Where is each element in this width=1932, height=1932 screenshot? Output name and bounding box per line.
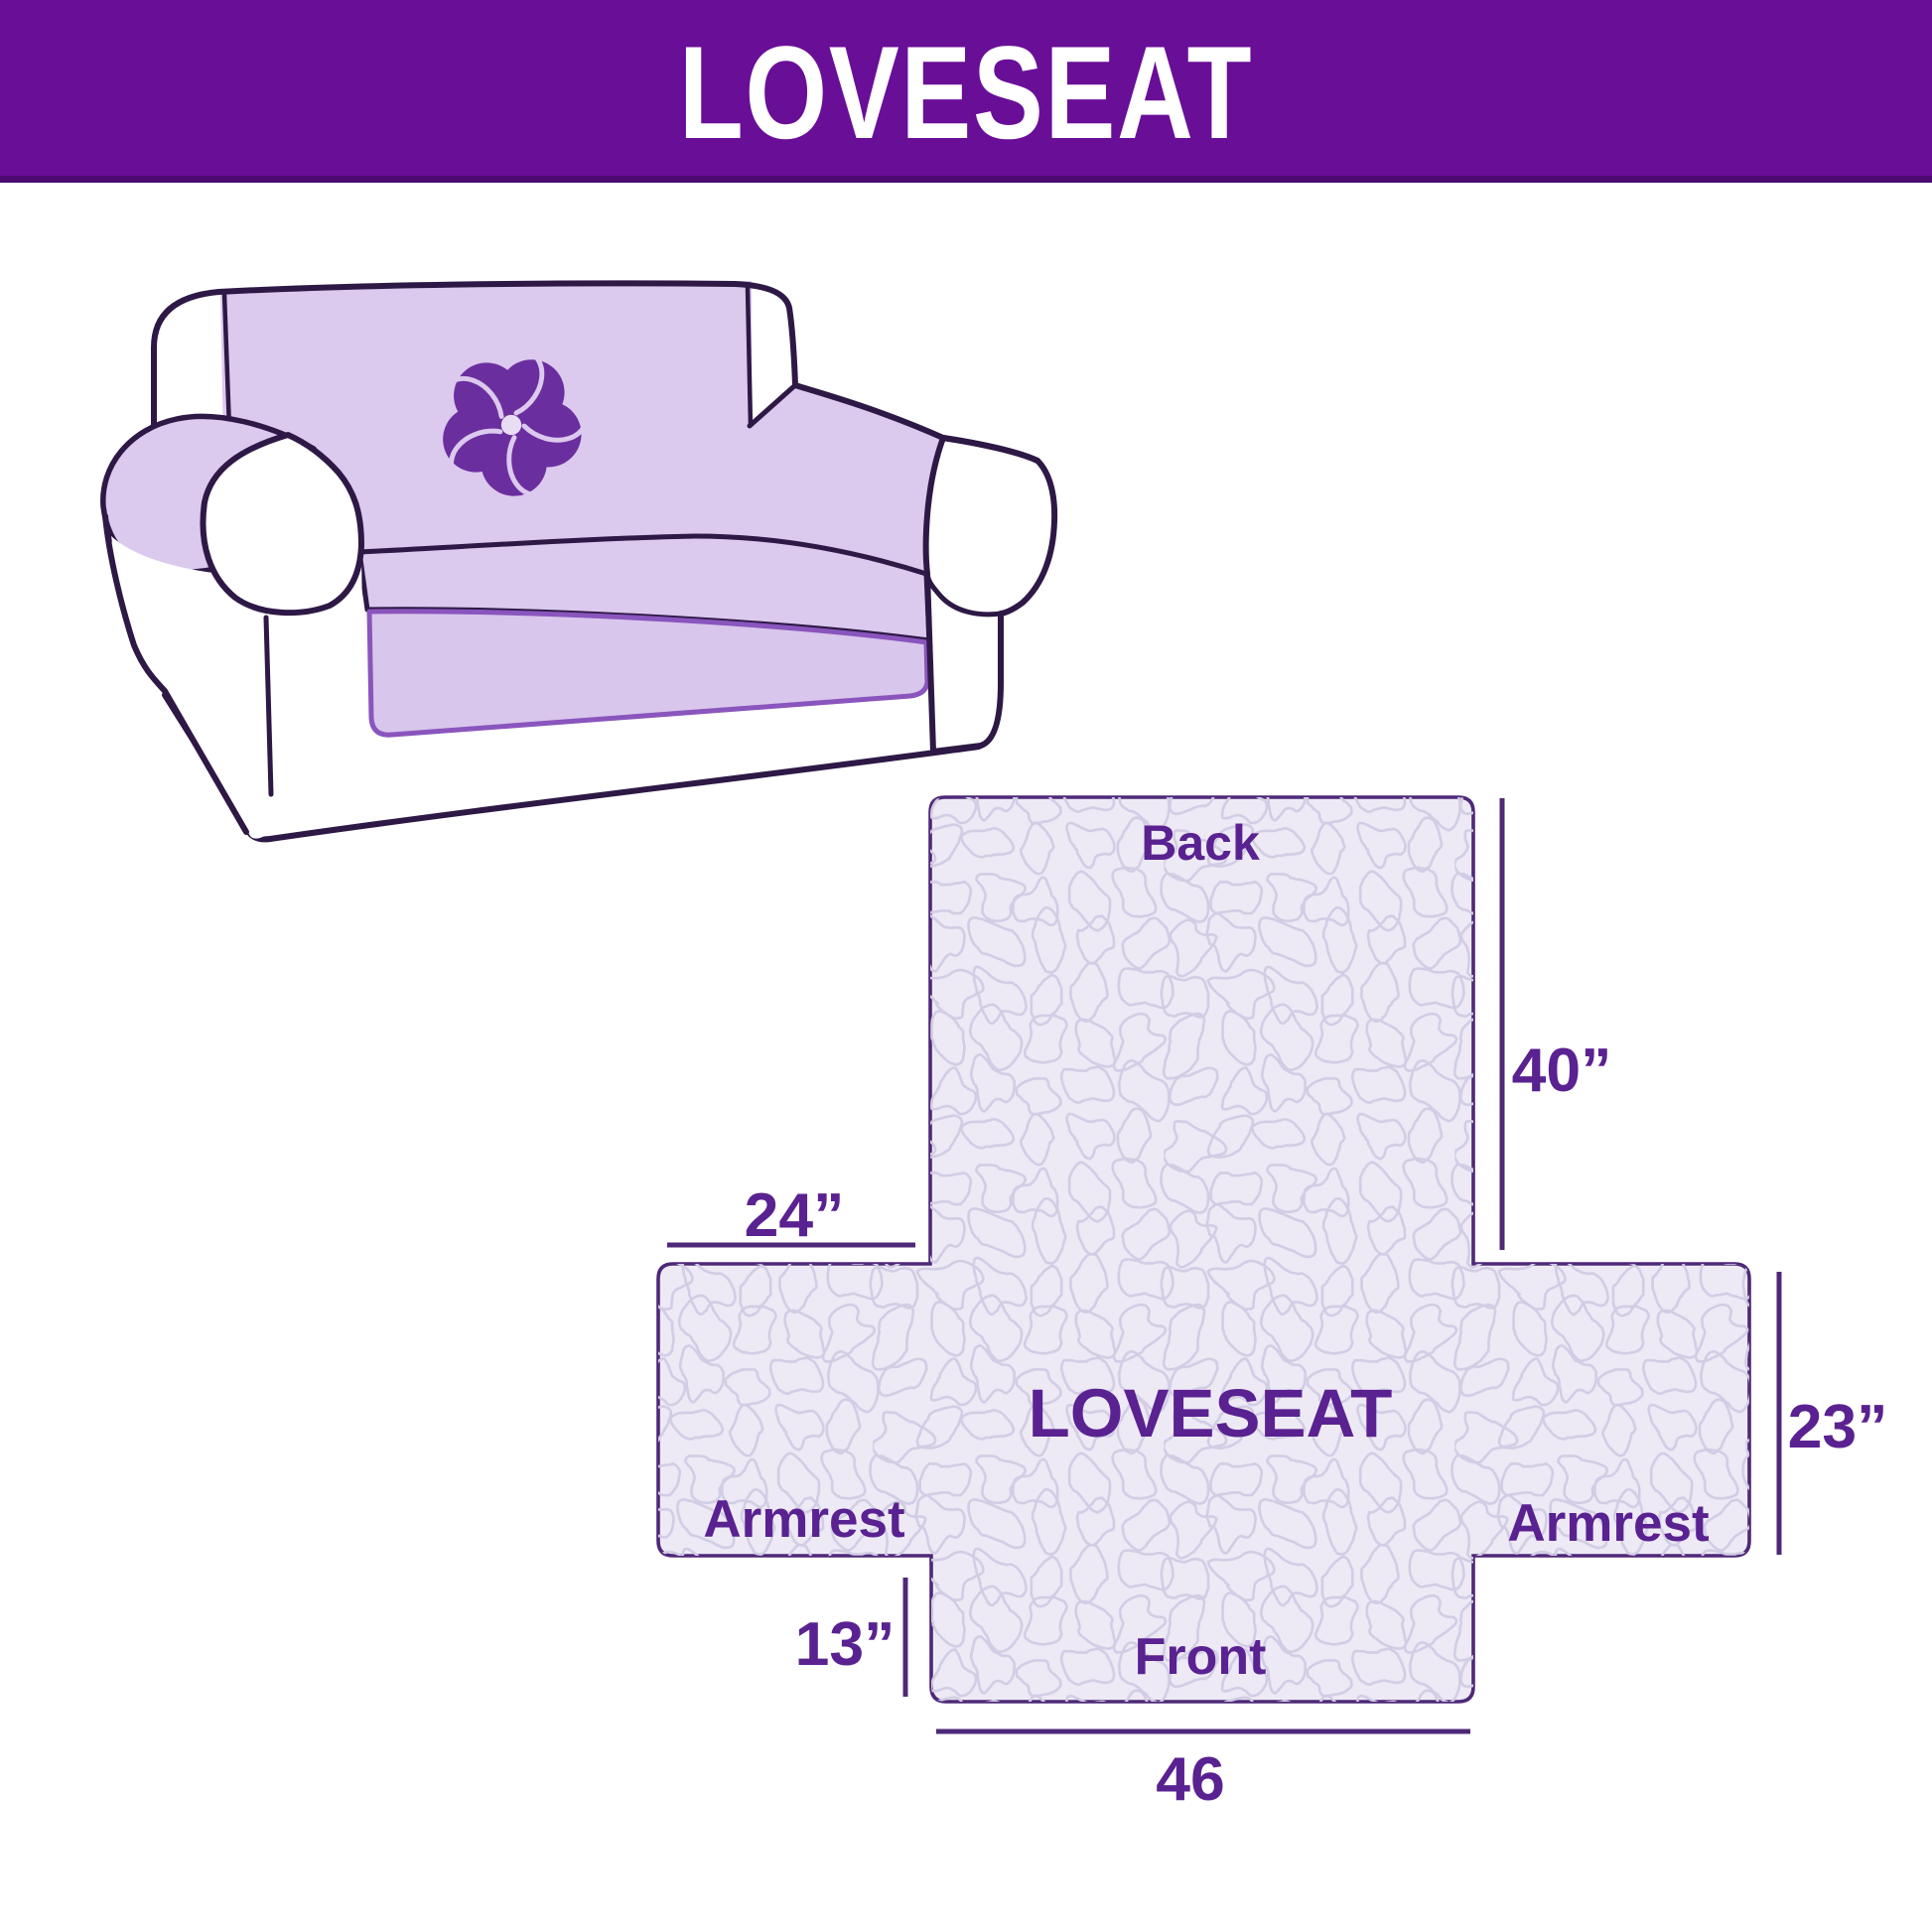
svg-text:LOVESEAT: LOVESEAT bbox=[1029, 1375, 1393, 1451]
svg-text:40”: 40” bbox=[1512, 1035, 1612, 1105]
svg-text:23”: 23” bbox=[1788, 1392, 1888, 1461]
svg-text:Front: Front bbox=[1135, 1628, 1267, 1686]
svg-text:46: 46 bbox=[1156, 1744, 1225, 1814]
svg-text:24”: 24” bbox=[745, 1180, 845, 1250]
svg-text:Armrest: Armrest bbox=[1507, 1494, 1709, 1553]
svg-text:Back: Back bbox=[1141, 815, 1260, 871]
svg-text:13”: 13” bbox=[795, 1609, 896, 1679]
svg-text:Armrest: Armrest bbox=[703, 1490, 904, 1549]
